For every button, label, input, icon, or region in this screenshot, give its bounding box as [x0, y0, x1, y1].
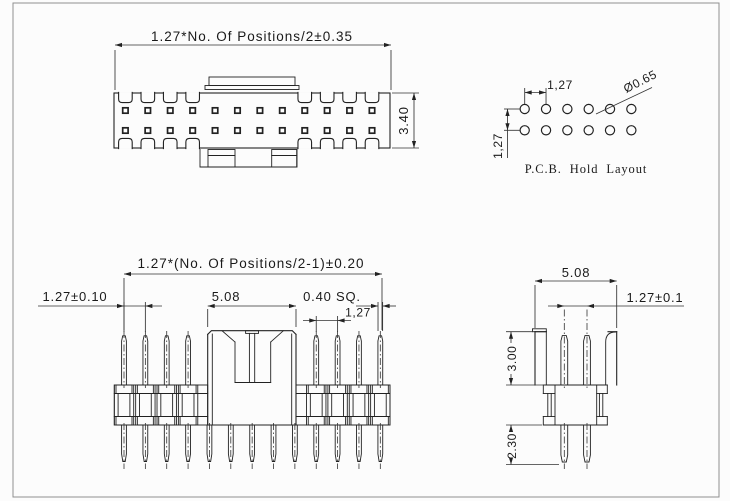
drawing-canvas: 1.27*No. Of Positions/2±0.35 3.40 1,27 1…	[0, 0, 730, 501]
dim-label-top-width: 1.27*No. Of Positions/2±0.35	[151, 29, 353, 44]
dim-label-side-span: 1.27*(No. Of Positions/2-1)±0.20	[137, 256, 364, 271]
notch-cover	[320, 92, 334, 102]
dim-arrow	[338, 318, 345, 322]
wall-top-tab	[533, 329, 547, 332]
dim-label-top-height: 3.40	[396, 106, 411, 135]
contact-square	[347, 108, 352, 113]
dim-arrow	[383, 304, 390, 308]
contact-square	[347, 128, 352, 133]
dim-arrow	[375, 272, 382, 276]
pcb-hole	[605, 126, 614, 135]
pcb-hole	[584, 104, 593, 113]
pcb-hole	[627, 104, 636, 113]
dim-arrow	[115, 43, 122, 47]
notch-cover	[298, 92, 312, 102]
contact-square	[168, 128, 173, 133]
view-header-end	[506, 279, 684, 469]
contact-square	[324, 108, 329, 113]
notch-cover	[298, 139, 312, 149]
dim-label-pin-bottom-length: 2.30	[505, 433, 519, 459]
collar-core	[118, 394, 130, 417]
dim-arrow	[117, 304, 124, 308]
key-rib-cap	[246, 331, 259, 334]
pcb-hole	[584, 126, 593, 135]
contact-square	[190, 128, 195, 133]
notch-cover	[141, 92, 155, 102]
contact-square	[168, 108, 173, 113]
dim-arrow	[412, 141, 416, 148]
view-connector-top	[114, 43, 419, 167]
bottom-latch-box	[272, 150, 297, 168]
contact-square	[145, 108, 150, 113]
contact-square	[369, 108, 374, 113]
contact-square	[235, 108, 240, 113]
contact-square	[212, 128, 217, 133]
notch-cover	[343, 92, 357, 102]
dim-arrow	[535, 279, 542, 283]
notch-cover	[118, 92, 132, 102]
pcb-hole	[541, 104, 550, 113]
notch-cover	[118, 139, 132, 149]
dim-label-hole-diameter: Ø0.65	[621, 67, 659, 96]
key-tab-flange	[205, 86, 299, 90]
line	[271, 331, 284, 342]
contact-square	[302, 108, 307, 113]
dim-label-side-pitch: 1.27±0.10	[43, 289, 108, 304]
dim-arrow	[509, 425, 513, 432]
dim-label-pin-size: 0.40 SQ.	[303, 289, 361, 304]
contact-square	[235, 128, 240, 133]
dim-label-pcb-pitch-v: 1,27	[491, 133, 505, 159]
contact-square	[302, 128, 307, 133]
contact-square	[280, 128, 285, 133]
collar-core	[310, 394, 322, 417]
notch-cover	[320, 139, 334, 149]
dim-label-shroud-width: 5.08	[212, 289, 241, 304]
dim-label-pin-top-length: 3.00	[505, 346, 519, 372]
collar-core	[332, 394, 344, 417]
contact-square	[257, 128, 262, 133]
pcb-layout-title: P.C.B. Hold Layout	[525, 162, 647, 176]
dim-arrow	[384, 43, 391, 47]
notch-cover	[163, 139, 177, 149]
dim-arrow	[309, 318, 316, 322]
notch-cover	[365, 139, 379, 149]
dim-arrow	[412, 93, 416, 100]
collar-core	[161, 394, 173, 417]
technical-drawing-page: 1.27*No. Of Positions/2±0.35 3.40 1,27 1…	[0, 0, 730, 501]
contact-square	[190, 108, 195, 113]
dim-arrow	[289, 304, 296, 308]
collar-core	[139, 394, 151, 417]
dim-arrow	[505, 123, 509, 130]
contact-square	[280, 108, 285, 113]
dim-arrow	[509, 332, 513, 339]
contact-square	[145, 128, 150, 133]
sheet-border	[13, 3, 719, 497]
line	[222, 331, 235, 342]
bottom-latch-box	[208, 150, 235, 168]
dim-arrow	[145, 304, 152, 308]
dim-label-side-pitch2: 1,27	[345, 306, 371, 320]
pcb-hole	[627, 126, 636, 135]
contact-square	[123, 128, 128, 133]
dim-arrow	[525, 90, 532, 94]
dim-arrow	[509, 378, 513, 385]
collar-core	[182, 394, 194, 417]
notch-cover	[186, 139, 200, 149]
dim-arrow	[124, 272, 131, 276]
notch-cover	[186, 92, 200, 102]
dim-arrow	[371, 304, 378, 308]
notch-cover	[343, 139, 357, 149]
collar-core	[374, 394, 386, 417]
view-pcb-hole-layout	[504, 88, 652, 159]
dim-arrow	[557, 304, 564, 308]
dim-arrow	[610, 279, 617, 283]
wall-inner-fillet	[606, 332, 616, 385]
dim-label-end-pitch: 1.27±0.1	[627, 290, 684, 305]
dim-arrow	[539, 90, 546, 94]
contact-square	[212, 108, 217, 113]
pcb-hole	[563, 104, 572, 113]
pcb-hole	[541, 126, 550, 135]
pcb-hole	[520, 104, 529, 113]
bottom-latch	[200, 150, 297, 168]
notch-cover	[163, 92, 177, 102]
dim-arrow	[505, 109, 509, 116]
notch-cover	[141, 139, 155, 149]
dim-arrow	[587, 304, 594, 308]
dim-label-pcb-pitch-h: 1,27	[547, 78, 573, 92]
key-tab	[209, 77, 295, 86]
pcb-hole	[563, 126, 572, 135]
notch-cover	[365, 92, 379, 102]
leader-line	[596, 88, 652, 115]
contact-square	[257, 108, 262, 113]
collar-core	[353, 394, 365, 417]
pcb-hole	[520, 126, 529, 135]
dim-arrow	[208, 304, 215, 308]
contact-square	[369, 128, 374, 133]
dim-label-end-width: 5.08	[562, 265, 591, 280]
contact-square	[123, 108, 128, 113]
contact-square	[324, 128, 329, 133]
